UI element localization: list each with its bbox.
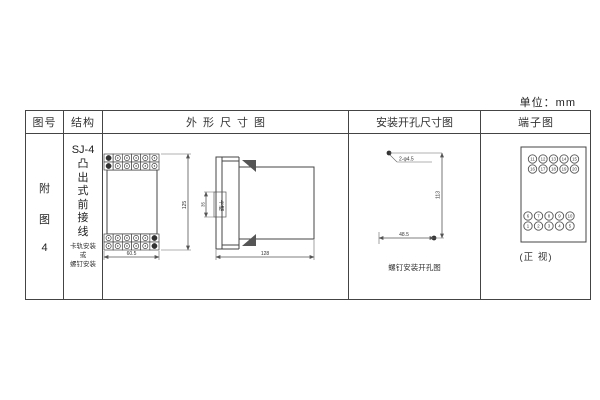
cell-outline-drawing: 60.5 125 (103, 134, 349, 299)
screw-head-filled (152, 243, 157, 248)
screw-center-dot (154, 165, 155, 166)
mounting-caption: 螺钉安装开孔图 (349, 262, 480, 273)
drawing-sheet: 单位：mm 图号 结构 外形尺寸图 安装开孔尺寸图 端子图 附 图 4 SJ-4 (0, 0, 600, 400)
screw-center-dot (117, 157, 118, 158)
terminal-number: 16 (530, 167, 535, 172)
figure-number: 附 图 4 (26, 134, 63, 299)
screw-center-dot (135, 237, 136, 238)
screw-center-dot (135, 157, 136, 158)
table-body-row: 附 图 4 SJ-4 凸出式前接线 卡轨安装 或 螺钉安装 (26, 134, 590, 299)
mounting-hole-drawing: 2-φ4.5 113 48.5 (374, 144, 474, 254)
terminal-caption: (正 视) (481, 249, 591, 263)
screw-center-dot (126, 157, 127, 158)
rail-slot-width-label: 35 (201, 202, 206, 208)
front-body (107, 170, 157, 234)
cell-terminal-diagram: 1112131415161718192067891012345 (正 视) (481, 134, 591, 299)
screw-center-dot (117, 237, 118, 238)
mount-note-line: 螺钉安装 (70, 261, 96, 270)
screw-center-dot (117, 245, 118, 246)
terminal-groups: 1112131415161718192067891012345 (524, 155, 579, 230)
screw-head-filled (152, 235, 157, 240)
screw-center-dot (145, 245, 146, 246)
terminal-number: 20 (572, 167, 577, 172)
header-outline-dims: 外形尺寸图 (103, 111, 349, 133)
side-bottom-clip (242, 234, 256, 246)
screw-head-filled (106, 155, 111, 160)
terminal-number: 14 (562, 157, 567, 162)
header-structure: 结构 (64, 111, 103, 133)
screw-center-dot (145, 165, 146, 166)
screw-center-dot (108, 237, 109, 238)
screw-center-dot (145, 157, 146, 158)
terminal-number: 19 (562, 167, 567, 172)
header-figure-no: 图号 (26, 111, 64, 133)
front-top-terminal-block (104, 154, 159, 170)
terminal-number: 18 (551, 167, 556, 172)
mount-note: 卡轨安装 或 螺钉安装 (70, 243, 96, 269)
horizontal-pitch-label: 48.5 (399, 232, 409, 238)
terminal-number: 12 (541, 157, 546, 162)
mount-note-line: 或 (70, 252, 96, 261)
cell-mounting-drawing: 2-φ4.5 113 48.5 螺钉安装开孔图 (349, 134, 481, 299)
hole-size-label: 2-φ4.5 (399, 157, 414, 163)
terminal-number: 17 (541, 167, 546, 172)
side-top-clip (242, 160, 256, 172)
screw-center-dot (154, 157, 155, 158)
side-body (239, 167, 314, 239)
figure-no-char: 附 (39, 180, 50, 196)
terminal-number: 15 (572, 157, 577, 162)
front-width-dim-label: 60.5 (127, 251, 137, 257)
screw-center-dot (117, 165, 118, 166)
header-mounting-holes: 安装开孔尺寸图 (349, 111, 481, 133)
cell-figure-no: 附 图 4 (26, 134, 64, 299)
screw-center-dot (135, 165, 136, 166)
screw-center-dot (126, 237, 127, 238)
unit-label: 单位：mm (520, 94, 576, 110)
screw-center-dot (126, 245, 127, 246)
screw-center-dot (145, 237, 146, 238)
spec-table: 图号 结构 外形尺寸图 安装开孔尺寸图 端子图 附 图 4 SJ-4 凸出式前接… (25, 110, 591, 300)
terminal-number: 11 (530, 157, 535, 162)
terminal-number: 13 (551, 157, 556, 162)
front-bottom-terminal-block (104, 234, 159, 250)
structure-info: SJ-4 凸出式前接线 卡轨安装 或 螺钉安装 (64, 134, 102, 299)
figure-no-char: 4 (41, 242, 47, 254)
mount-note-line: 卡轨安装 (70, 243, 96, 252)
structure-type-vertical: 凸出式前接线 (78, 158, 89, 239)
model-name: SJ-4 (72, 144, 95, 156)
cell-structure: SJ-4 凸出式前接线 卡轨安装 或 螺钉安装 (64, 134, 103, 299)
side-depth-dim-label: 128 (261, 251, 270, 257)
screw-head-filled (106, 163, 111, 168)
terminal-number: 10 (568, 214, 573, 219)
rail-slot-label: 卡槽 (214, 193, 227, 218)
table-header-row: 图号 结构 外形尺寸图 安装开孔尺寸图 端子图 (26, 111, 590, 134)
screw-center-dot (126, 165, 127, 166)
front-height-dim-label: 125 (182, 201, 188, 210)
header-terminals: 端子图 (481, 111, 591, 133)
front-view-drawing: 60.5 125 (103, 148, 199, 274)
terminal-diagram: 1112131415161718192067891012345 (516, 144, 588, 244)
screw-center-dot (108, 245, 109, 246)
figure-no-char: 图 (39, 211, 50, 227)
vertical-pitch-label: 113 (436, 191, 442, 199)
screw-center-dot (135, 245, 136, 246)
